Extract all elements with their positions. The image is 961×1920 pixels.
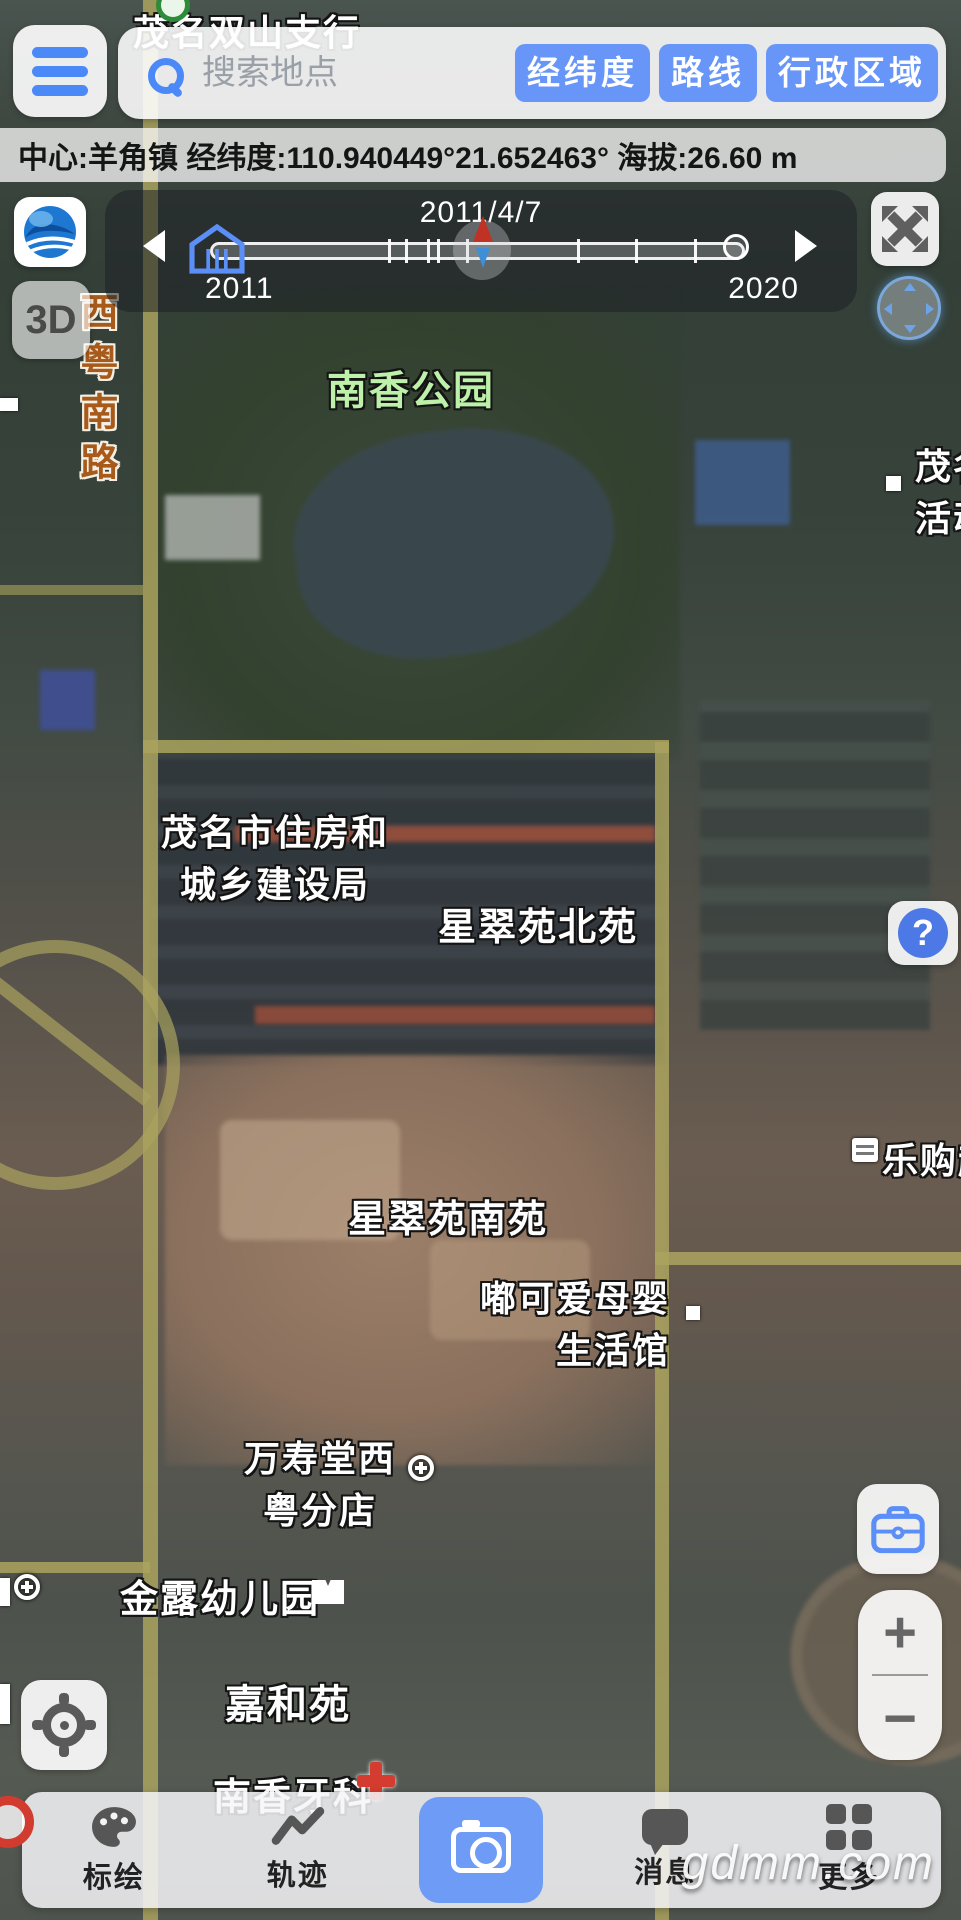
edge-cross-icon bbox=[14, 1574, 40, 1600]
fullscreen-button[interactable] bbox=[871, 192, 939, 266]
buildings bbox=[700, 700, 930, 1030]
map-label-edge-poi: 茂名 活动 bbox=[915, 438, 961, 542]
site-watermark: gdmm.com bbox=[682, 1836, 935, 1891]
question-mark-icon: ? bbox=[898, 908, 948, 958]
zoom-out-button[interactable]: − bbox=[858, 1676, 942, 1760]
road-horizontal-1 bbox=[143, 740, 669, 753]
admin-region-button[interactable]: 行政区域 bbox=[766, 44, 938, 102]
timeline-tick bbox=[577, 239, 580, 263]
map-label-baby-shop: 嘟可爱母婴 生活馆 bbox=[480, 1270, 670, 1374]
map-label-supermarket: 乐购超 bbox=[882, 1132, 961, 1184]
red-roofs bbox=[255, 1006, 655, 1024]
map-label-estate-south: 星翠苑南苑 bbox=[348, 1188, 548, 1243]
hamburger-icon bbox=[32, 47, 88, 58]
west-chevron-icon bbox=[884, 303, 892, 315]
map-label-park: 南香公园 bbox=[327, 358, 495, 416]
toolbox-button[interactable] bbox=[857, 1484, 939, 1574]
camera-icon bbox=[451, 1827, 511, 1873]
white-building bbox=[165, 495, 260, 560]
north-chevron-icon bbox=[904, 283, 916, 291]
camera-slot bbox=[390, 1792, 574, 1908]
poi-fragment bbox=[0, 1578, 10, 1606]
expand-arrows-icon bbox=[882, 206, 928, 252]
camera-button[interactable] bbox=[419, 1797, 543, 1903]
draw-label: 标绘 bbox=[83, 1854, 145, 1896]
timeline-slider-handle[interactable] bbox=[453, 220, 511, 280]
app-screen: 茂名双山支行 南香公园 西粤南路 茂名市住房和 城乡建设局 星翠苑北苑 星翠苑南… bbox=[0, 0, 961, 1920]
3d-mode-button[interactable]: 3D bbox=[12, 281, 90, 359]
search-input[interactable] bbox=[200, 53, 515, 94]
building-history-icon[interactable] bbox=[187, 224, 247, 274]
timeline-tick bbox=[437, 239, 440, 263]
search-actions: 经纬度 路线 行政区域 bbox=[515, 44, 938, 102]
zoom-control: + − bbox=[858, 1590, 942, 1760]
timeline-start-year: 2011 bbox=[205, 272, 274, 306]
map-label-residence: 嘉和苑 bbox=[225, 1672, 351, 1730]
draw-tool[interactable]: 标绘 bbox=[22, 1792, 206, 1908]
marker-down-icon bbox=[476, 248, 490, 268]
latlng-button[interactable]: 经纬度 bbox=[515, 44, 650, 102]
timeline-tick bbox=[388, 239, 391, 263]
zigzag-track-icon bbox=[270, 1806, 326, 1848]
poi-fragment bbox=[0, 398, 18, 411]
zoom-in-button[interactable]: + bbox=[858, 1590, 942, 1674]
map-label-kindergarten: 金露幼儿园 bbox=[120, 1568, 320, 1623]
blue-building bbox=[695, 440, 790, 525]
help-button[interactable]: ? bbox=[888, 901, 958, 965]
timeline-tick bbox=[427, 239, 430, 263]
timeline-tick bbox=[635, 239, 638, 263]
track-tool[interactable]: 轨迹 bbox=[206, 1792, 390, 1908]
timeline-tick bbox=[694, 239, 697, 263]
map-label-pharmacy: 万寿堂西 粤分店 bbox=[230, 1430, 410, 1534]
marker-up-icon bbox=[473, 216, 493, 242]
timeline-end-ring bbox=[723, 234, 749, 260]
road-horizontal-4 bbox=[0, 585, 143, 595]
locate-me-button[interactable] bbox=[21, 1680, 107, 1770]
south-chevron-icon bbox=[904, 325, 916, 333]
app-logo-button[interactable] bbox=[14, 197, 86, 267]
east-chevron-icon bbox=[926, 303, 934, 315]
map-label-estate-north: 星翠苑北苑 bbox=[438, 896, 638, 951]
poi-dot bbox=[886, 476, 901, 491]
route-button[interactable]: 路线 bbox=[659, 44, 757, 102]
crosshair-icon bbox=[38, 1699, 90, 1751]
palette-icon bbox=[88, 1804, 140, 1850]
construction-site bbox=[165, 1055, 665, 1465]
status-bar: 中心:羊角镇 经纬度:110.940449°21.652463° 海拔:26.6… bbox=[0, 128, 946, 182]
pharmacy-cross-icon bbox=[408, 1455, 434, 1481]
imagery-timeline[interactable]: 2011/4/7 2011 2020 bbox=[105, 190, 857, 312]
poi-fragment bbox=[0, 1684, 10, 1724]
search-bar[interactable]: 经纬度 路线 行政区域 bbox=[118, 27, 946, 119]
timeline-tick bbox=[405, 239, 408, 263]
blue-globe-icon bbox=[21, 204, 79, 260]
poi-dot bbox=[686, 1306, 700, 1320]
track-label: 轨迹 bbox=[267, 1852, 329, 1894]
road-horizontal-2 bbox=[655, 1252, 961, 1265]
briefcase-icon bbox=[870, 1503, 926, 1555]
blue-building bbox=[40, 670, 95, 730]
supermarket-icon bbox=[852, 1138, 878, 1162]
compass-joystick[interactable] bbox=[877, 276, 941, 340]
menu-button[interactable] bbox=[13, 25, 107, 117]
center-coordinates-text: 中心:羊角镇 经纬度:110.940449°21.652463° 海拔:26.6… bbox=[18, 133, 797, 177]
map-label-housing-bureau: 茂名市住房和 城乡建设局 bbox=[150, 804, 400, 908]
timeline-next-button[interactable] bbox=[795, 230, 817, 262]
search-icon bbox=[148, 58, 178, 88]
timeline-end-year: 2020 bbox=[728, 272, 799, 306]
timeline-prev-button[interactable] bbox=[143, 230, 165, 262]
